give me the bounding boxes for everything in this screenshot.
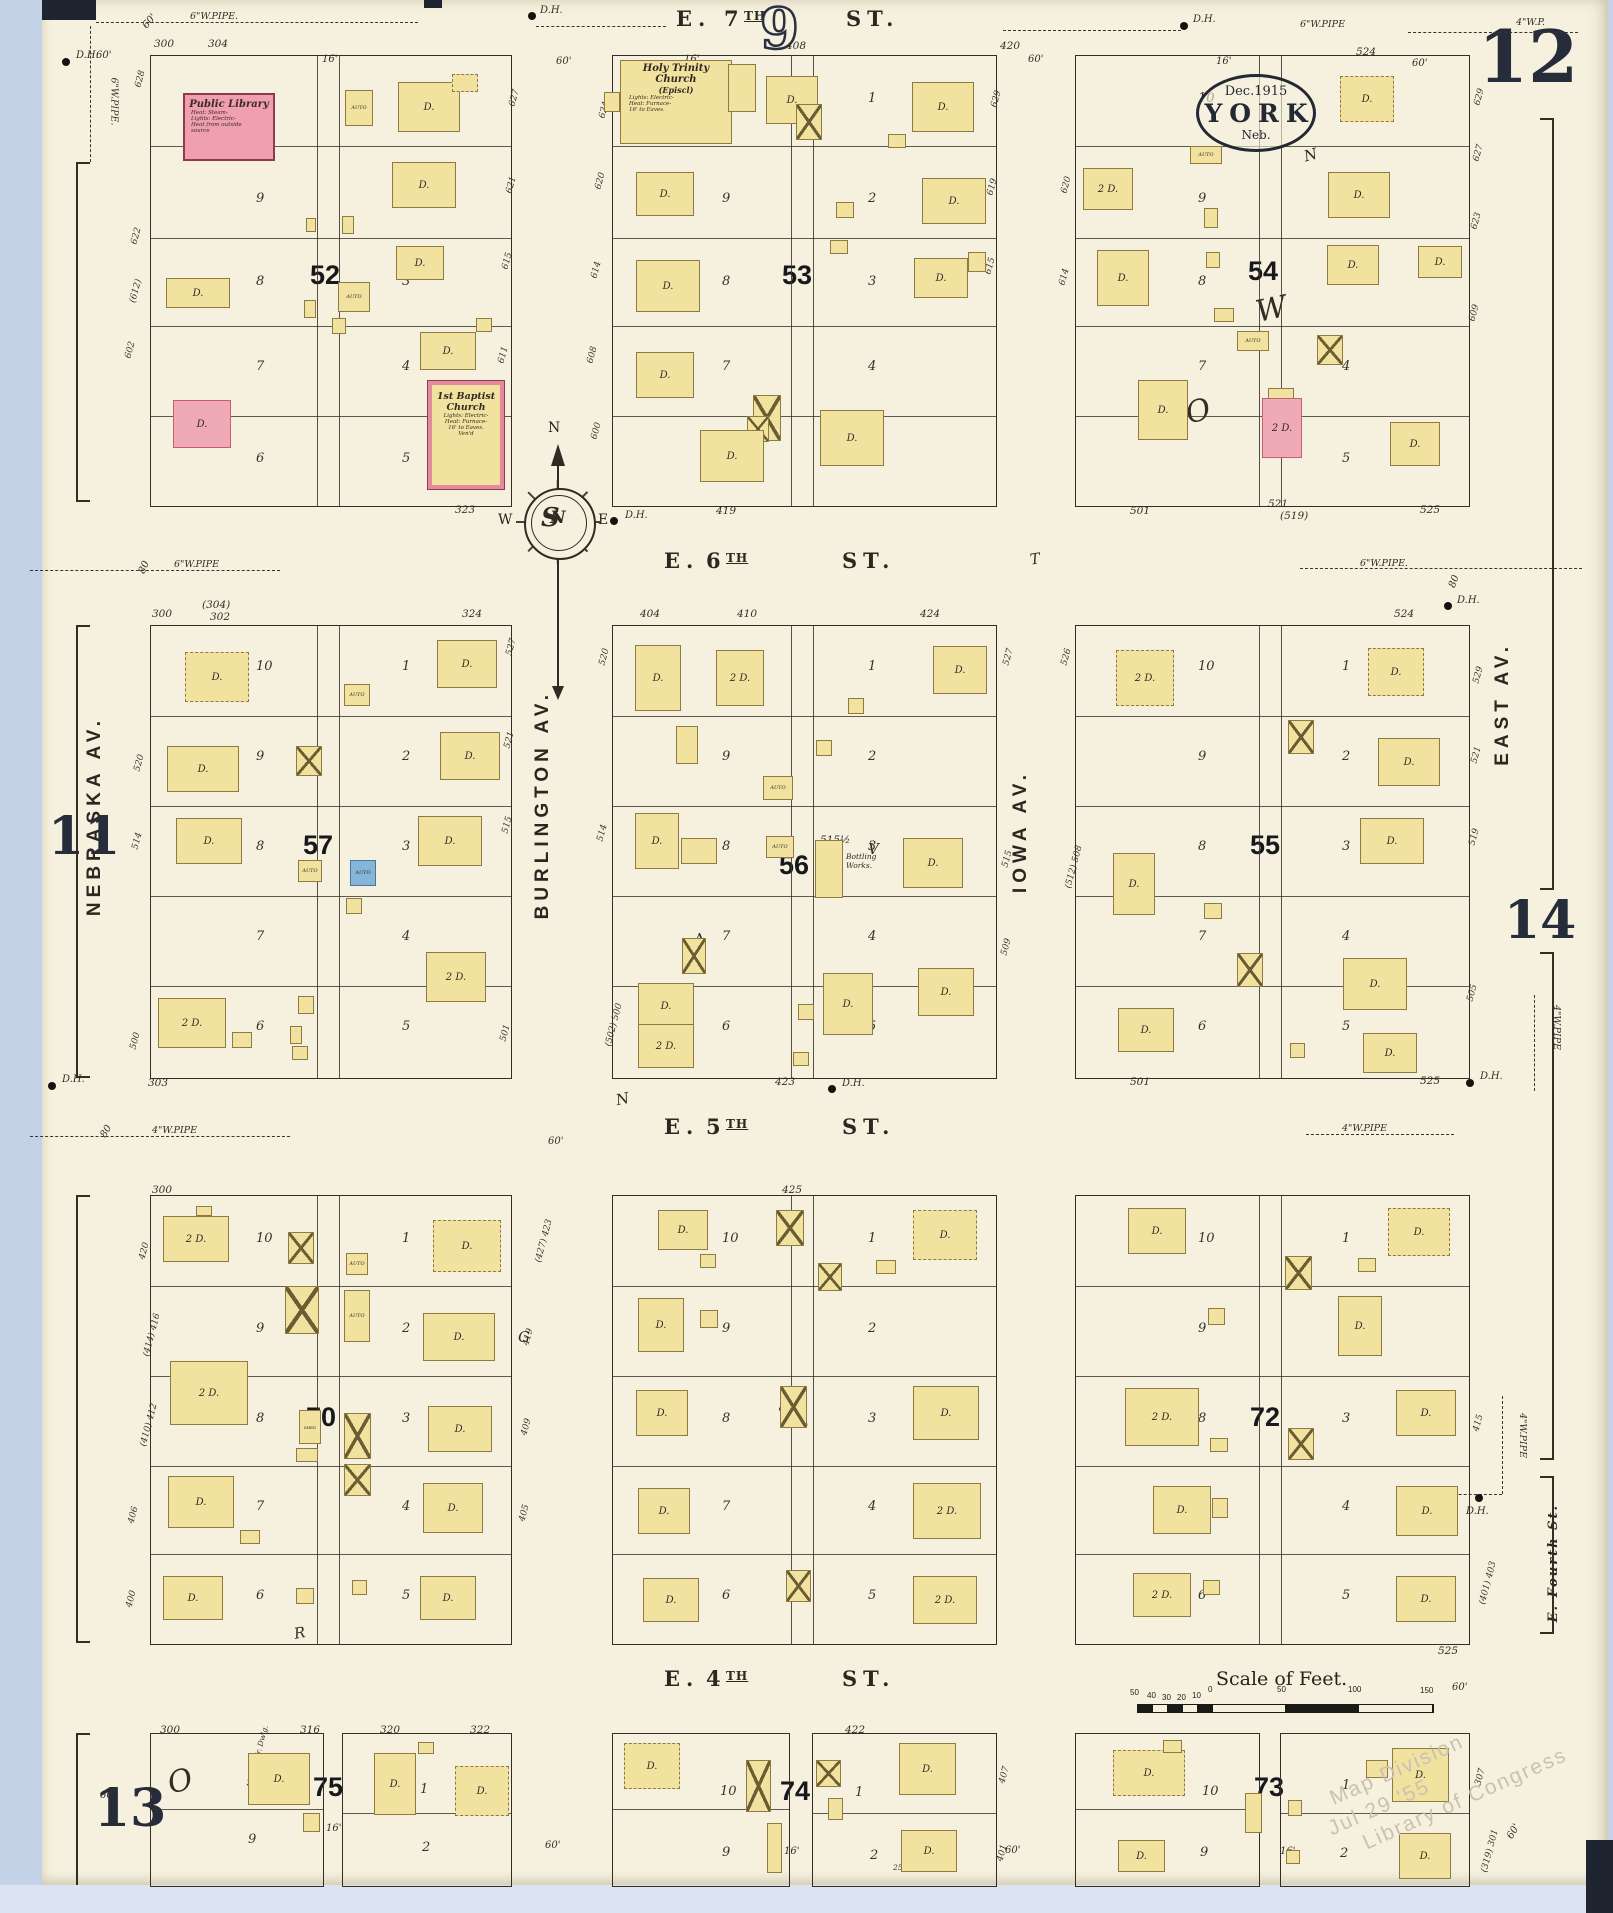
- building-dwelling: [798, 1004, 814, 1020]
- hydrant-dot: [48, 1082, 56, 1090]
- building-dwelling: D.: [1368, 648, 1424, 696]
- building-label: D.: [1144, 1768, 1155, 1779]
- lot-line: [1076, 986, 1469, 987]
- building-dwelling: [304, 300, 316, 318]
- building-label: 2 D.: [446, 972, 466, 983]
- lot-number: 10: [256, 1231, 273, 1246]
- building-label: D.: [1385, 1048, 1396, 1059]
- landmark-holy-trinity-church: Holy Trinity Church (Episcl) Lights: Ele…: [620, 60, 732, 144]
- building-label: D.: [193, 288, 204, 299]
- building-dwelling: [306, 218, 316, 232]
- building-label: D.: [949, 196, 960, 207]
- building-dwelling: [968, 252, 986, 272]
- building-label: D.: [955, 665, 966, 676]
- building-label: D.: [188, 1593, 199, 1604]
- dimension-label: 60': [556, 56, 571, 67]
- compass-needle-tip: [551, 444, 565, 466]
- lot-number: 4: [868, 929, 876, 944]
- lot-number: 9: [722, 1321, 730, 1336]
- building-dwelling: D.: [1390, 422, 1440, 466]
- house-number: 415: [1472, 1413, 1486, 1432]
- margin-line: [76, 162, 78, 502]
- landmark-bottling-works-label: Bottling Works.: [846, 852, 876, 870]
- building-label: D.: [1422, 1506, 1433, 1517]
- address-label: 424: [920, 608, 940, 620]
- landmark-name: (Episcl): [621, 85, 731, 95]
- lot-line: [151, 326, 511, 327]
- lot-number: 4: [402, 929, 410, 944]
- dimension-label: 80: [137, 559, 152, 575]
- hydrant-dot: [828, 1085, 836, 1093]
- alley-line: [317, 56, 318, 506]
- building-dwelling: [196, 1206, 212, 1216]
- building-dwelling: [604, 92, 620, 112]
- map-date: Dec.1915: [1225, 84, 1288, 99]
- building-dwelling: D.: [248, 1753, 310, 1805]
- building-label: D.: [653, 673, 664, 684]
- building-barn-x: [776, 1210, 804, 1246]
- house-number: 614: [590, 260, 604, 279]
- house-number: (427) 423: [534, 1218, 555, 1263]
- building-dwelling: [1210, 1438, 1228, 1452]
- building-label: D.: [1141, 1025, 1152, 1036]
- building-dwelling: D.: [1396, 1576, 1456, 1622]
- building-label: D.: [666, 1595, 677, 1606]
- address-label: 300: [152, 608, 172, 620]
- building-barn-x: [296, 746, 322, 776]
- lot-number: 6: [256, 1588, 264, 1603]
- building-dwelling: D.: [1113, 1750, 1185, 1796]
- building-dwelling: D.: [1396, 1486, 1458, 1536]
- lot-number: 2: [1342, 749, 1350, 764]
- building-label: D.: [843, 999, 854, 1010]
- water-pipe-line: [30, 1136, 290, 1137]
- lot-line: [151, 716, 511, 717]
- lot-number: 1: [1342, 1231, 1350, 1246]
- address-label: 524: [1394, 608, 1414, 620]
- building-dwelling: [830, 240, 848, 254]
- scale-bar-cell: [1286, 1705, 1359, 1712]
- house-number: 514: [596, 823, 610, 842]
- landmark-note: Ven'd: [432, 431, 500, 437]
- margin-line: [1540, 1632, 1553, 1634]
- building-dwelling: [1288, 1800, 1302, 1816]
- building-dwelling: D.: [1328, 172, 1390, 218]
- water-pipe-label: 4"W.P.: [1514, 17, 1547, 28]
- water-pipe-line: [1306, 1134, 1454, 1135]
- building-label: D.: [941, 1408, 952, 1419]
- building-dwelling: [700, 1254, 716, 1268]
- hydrant-dot: [528, 12, 536, 20]
- building-dwelling: AUTO: [298, 860, 322, 882]
- building-dwelling: [232, 1032, 252, 1048]
- house-number: (319) 301: [1480, 1828, 1501, 1873]
- street-label-suffix: TH: [726, 551, 748, 565]
- lot-number: 6: [256, 1019, 264, 1034]
- building-barn-x: [344, 1413, 371, 1459]
- building-dwelling: [676, 726, 698, 764]
- building-dwelling: D.: [635, 813, 679, 869]
- dimension-label: 80: [1447, 574, 1462, 590]
- building-dwelling: AUTO: [344, 1290, 370, 1342]
- building-dwelling: [1214, 308, 1234, 322]
- alley-line: [1281, 626, 1282, 1078]
- building-label: D.: [1370, 979, 1381, 990]
- building-dwelling: [352, 1580, 367, 1595]
- building-label: D.: [1354, 190, 1365, 201]
- building-dwelling: D.: [624, 1743, 680, 1789]
- building-dwelling: [816, 740, 832, 756]
- lot-number: 9: [1198, 191, 1206, 206]
- margin-line: [1552, 118, 1554, 890]
- map-city: YORK: [1204, 99, 1314, 128]
- water-pipe-label: 6"W.PIPE: [1298, 19, 1347, 30]
- hydrant-label: D.H.: [842, 1078, 865, 1089]
- lot-number: 8: [1198, 1411, 1206, 1426]
- hydrant-label: D.H.: [1193, 14, 1216, 25]
- building-label: D.: [936, 273, 947, 284]
- building-barn-x: [1285, 1256, 1312, 1290]
- building-dwelling: [303, 1813, 320, 1832]
- street-label: E.: [676, 6, 711, 31]
- building-dwelling: D.: [374, 1753, 416, 1815]
- compass-north-label: N: [548, 420, 560, 436]
- water-pipe-label: 6"W.PIPE.: [109, 75, 120, 127]
- building-label: D.: [462, 659, 473, 670]
- street-label: E.: [664, 1666, 699, 1691]
- lot-number: 7: [256, 929, 264, 944]
- lot-number: 10: [1198, 1231, 1215, 1246]
- landmark-name: 1st Baptist Church: [432, 391, 500, 413]
- lot-number: 2: [868, 749, 876, 764]
- water-pipe-line: [1300, 568, 1582, 569]
- water-pipe-label: 4"W.PIPE: [150, 1125, 199, 1136]
- building-dwelling: D.: [185, 652, 249, 702]
- lot-number: 5: [1342, 1019, 1350, 1034]
- building-dwelling: D.: [396, 246, 444, 280]
- address-label: 525: [1438, 1645, 1458, 1657]
- lot-number: 7: [722, 359, 730, 374]
- lot-number: 2: [402, 749, 410, 764]
- building-dwelling: [1245, 1793, 1262, 1833]
- lot-number: 1: [402, 659, 410, 674]
- building-label: D.: [661, 1001, 672, 1012]
- building-barn-x: [288, 1232, 314, 1264]
- building-label: 2 D.: [937, 1506, 957, 1517]
- building-dwelling: AUTO: [1237, 331, 1269, 351]
- building-dwelling: D.: [455, 1766, 509, 1816]
- building-label: D.: [1348, 260, 1359, 271]
- lot-number: 1: [868, 659, 876, 674]
- street-label: 7: [724, 6, 745, 31]
- building-dwelling: [1286, 1850, 1300, 1864]
- scale-tick-label: 150: [1420, 1686, 1433, 1695]
- dimension-label: 60': [1505, 1822, 1522, 1841]
- compass-east-label: E: [598, 512, 608, 528]
- address-label: 410: [737, 608, 757, 620]
- dimension-label: 60': [545, 1840, 560, 1851]
- building-dwelling: [1203, 1580, 1220, 1595]
- building-dwelling: [1204, 208, 1218, 228]
- building-dwelling: D.: [901, 1830, 957, 1872]
- lot-number: 1: [868, 91, 876, 106]
- building-label: AUTO: [349, 1261, 364, 1267]
- house-number: 514: [131, 831, 145, 850]
- lot-number: 9: [256, 191, 264, 206]
- lot-number: 6: [1198, 1019, 1206, 1034]
- building-label: D.: [1421, 1408, 1432, 1419]
- building-dwelling: [767, 1823, 782, 1873]
- scale-tick-label: 10: [1192, 1691, 1201, 1700]
- compass-south-arrow: [552, 686, 564, 700]
- lot-number: 9: [256, 1321, 264, 1336]
- building-label: 2 D.: [656, 1041, 676, 1052]
- street-label-suffix: TH: [726, 1669, 748, 1683]
- building-barn-x: [1237, 953, 1263, 987]
- building-dwelling: [728, 64, 756, 112]
- building-dwelling: D.: [1418, 246, 1462, 278]
- lot-number: 9: [722, 749, 730, 764]
- scale-bar-cell: [1168, 1705, 1183, 1712]
- landmark-name: Works.: [846, 861, 876, 870]
- hydrant-label: D.H.: [625, 510, 648, 521]
- building-label: AUTO: [1245, 338, 1260, 344]
- building-dwelling: D.: [398, 82, 460, 132]
- address-label: 408: [786, 40, 806, 52]
- house-number: 628: [134, 69, 148, 88]
- lot-number: 7: [1198, 929, 1206, 944]
- building-dwelling: 2 D.: [638, 1024, 694, 1068]
- building-label: D.: [1414, 1227, 1425, 1238]
- dimension-label: 16': [326, 1823, 341, 1834]
- lot-number: 8: [256, 1411, 264, 1426]
- house-number: 614: [1058, 267, 1072, 286]
- building-dwelling: [700, 1310, 718, 1328]
- building-label: AUTO: [302, 868, 317, 874]
- margin-line: [76, 1195, 90, 1197]
- house-number: 401: [996, 1843, 1010, 1862]
- building-barn-x: [786, 1570, 811, 1602]
- alley-line: [1259, 626, 1260, 1078]
- building-dwelling: AUTO: [345, 90, 373, 126]
- lot-line: [613, 1376, 996, 1377]
- building-label: AUTO: [351, 105, 366, 111]
- hydrant-dot: [1475, 1494, 1483, 1502]
- building-label: D.: [390, 1779, 401, 1790]
- building-dwelling: D.: [638, 1298, 684, 1352]
- hydrant-label: D.H.: [540, 5, 563, 16]
- lot-line: [613, 896, 996, 897]
- building-label: 2 D.: [1152, 1590, 1172, 1601]
- building-dwelling: D.: [1363, 1033, 1417, 1073]
- building-label: 2 D.: [730, 673, 750, 684]
- scale-bar-cell: [1183, 1705, 1198, 1712]
- building-label: D.: [462, 1241, 473, 1252]
- lot-number: 5: [402, 1588, 410, 1603]
- water-pipe-line: [536, 26, 666, 27]
- building-dwelling: D.: [1153, 1486, 1211, 1534]
- building-barn-x: [285, 1286, 319, 1334]
- lot-number: 6: [722, 1019, 730, 1034]
- lot-line: [613, 326, 996, 327]
- lot-line: [151, 238, 511, 239]
- water-pipe-label: 6"W.PIPE.: [188, 11, 240, 22]
- building-label: D.: [924, 1846, 935, 1857]
- alley-line: [1259, 1196, 1260, 1644]
- building-dwelling: 2 D.: [163, 1216, 229, 1262]
- margin-line: [1540, 1476, 1553, 1478]
- landmark-note: 16' to Eaves.: [629, 107, 731, 113]
- landmark-name: Holy Trinity: [621, 63, 731, 74]
- compass-monogram: SN: [541, 503, 560, 533]
- scale-tick-label: 100: [1348, 1685, 1361, 1694]
- building-label: AUTO: [1198, 152, 1213, 158]
- building-dwelling: [876, 1260, 896, 1274]
- building-label: D.: [928, 858, 939, 869]
- house-number: (401) 403: [1478, 1560, 1499, 1605]
- building-dwelling: D.: [823, 973, 873, 1035]
- building-auto-blue: AUTO: [350, 860, 376, 886]
- lot-number: 8: [256, 274, 264, 289]
- water-pipe-label: 4"W.PIPE: [1517, 1411, 1528, 1460]
- building-barn-x: [818, 1263, 842, 1291]
- building-dwelling: [1208, 1308, 1225, 1325]
- margin-line: [1540, 952, 1553, 954]
- building-dwelling: [1204, 903, 1222, 919]
- building-dwelling: D.: [176, 818, 242, 864]
- building-dwelling: AUTO: [346, 1253, 368, 1275]
- building-pink-brick: 2 D.: [1262, 398, 1302, 458]
- lot-line: [1076, 238, 1469, 239]
- building-label: D.: [647, 1761, 658, 1772]
- building-label: D.: [1404, 757, 1415, 768]
- avenue-label: IOWA AV.: [1010, 770, 1032, 893]
- building-pink-brick: D.: [173, 400, 231, 448]
- address-label: 304: [208, 38, 228, 50]
- water-pipe-line: [1003, 30, 1181, 31]
- lot-line: [151, 1286, 511, 1287]
- scale-bar-title: Scale of Feet.: [1216, 1668, 1347, 1690]
- building-dwelling: D.: [420, 1576, 476, 1620]
- building-label: D.: [1136, 1851, 1147, 1862]
- house-number: 600: [590, 421, 604, 440]
- building-label: D.: [1152, 1226, 1163, 1237]
- lot-line: [151, 1809, 323, 1810]
- avenue-label: BURLINGTON AV.: [532, 690, 554, 919]
- hydrant-label: D.H.: [1480, 1071, 1503, 1082]
- lot-line: [613, 1286, 996, 1287]
- house-number: 622: [130, 226, 144, 245]
- lot-number: 3: [868, 1411, 876, 1426]
- water-pipe-label: 4"W.PIPE: [1340, 1123, 1389, 1134]
- margin-line: [76, 1733, 90, 1735]
- lot-line: [613, 146, 996, 147]
- page-number: 11: [48, 806, 120, 867]
- building-dwelling: 2 D.: [1133, 1573, 1191, 1617]
- lot-line: [1076, 326, 1469, 327]
- landmark-public-library: Public Library Heat: Steam- Lights: Elec…: [183, 93, 275, 161]
- building-dwelling: D.: [392, 162, 456, 208]
- water-pipe-line: [96, 22, 418, 23]
- scale-tick-label: 40: [1147, 1691, 1156, 1700]
- building-dwelling: 2 D.: [1083, 168, 1133, 210]
- scale-tick-label: 0: [1208, 1685, 1212, 1694]
- margin-line: [1540, 118, 1553, 120]
- lot-line: [613, 806, 996, 807]
- building-dwelling: D.: [922, 178, 986, 224]
- building-label: AUTO: [349, 1313, 364, 1319]
- lot-number: 5: [402, 451, 410, 466]
- building-dwelling: D.: [913, 1386, 979, 1440]
- building-dwelling: D.: [428, 1406, 492, 1452]
- building-label: 2 D.: [186, 1234, 206, 1245]
- address-label: (519): [1280, 510, 1308, 522]
- building-dwelling: SHED: [299, 1410, 321, 1444]
- margin-line: [76, 1076, 90, 1078]
- building-dwelling: D.: [635, 645, 681, 711]
- house-number: 529: [1472, 665, 1486, 684]
- building-label: D.: [1362, 94, 1373, 105]
- lot-line: [1076, 1286, 1469, 1287]
- building-label: D.: [443, 346, 454, 357]
- lot-number: 3: [1342, 839, 1350, 854]
- landmark-first-baptist-church: 1st Baptist Church Lights: Electric- Hea…: [428, 381, 504, 489]
- building-dwelling: [681, 838, 717, 864]
- building-label: D.: [477, 1786, 488, 1797]
- margin-line: [1540, 1458, 1553, 1460]
- building-barn-x: [816, 1760, 841, 1787]
- lot-line: [1076, 806, 1469, 807]
- building-label: D.: [660, 189, 671, 200]
- address-label: 404: [640, 608, 660, 620]
- building-dwelling: [296, 1448, 318, 1462]
- building-label: D.: [678, 1225, 689, 1236]
- lot-number: 2: [868, 191, 876, 206]
- building-dwelling: D.: [700, 430, 764, 482]
- lot-line: [1076, 1809, 1259, 1810]
- water-pipe-line: [1502, 1396, 1503, 1494]
- sanborn-map-york-1915: Dec.1915 YORK Neb. SN N W E Public Libra…: [0, 0, 1613, 1913]
- hydrant-dot: [1466, 1079, 1474, 1087]
- hydrant-label: D.H.: [76, 50, 99, 61]
- building-label: 2 D.: [935, 1595, 955, 1606]
- margin-line: [76, 1733, 78, 1885]
- building-dwelling: D.: [643, 1578, 699, 1622]
- building-label: D.: [1391, 667, 1402, 678]
- building-dwelling: D.: [1113, 853, 1155, 915]
- street-label: ST.: [842, 1114, 895, 1139]
- lot-number: 8: [256, 839, 264, 854]
- water-pipe-line: [90, 26, 91, 162]
- building-label: D.: [659, 1506, 670, 1517]
- building-dwelling: D.: [899, 1743, 956, 1795]
- alley-line: [339, 56, 340, 506]
- building-dwelling: D.: [1340, 76, 1394, 122]
- building-dwelling: D.: [1097, 250, 1149, 306]
- building-dwelling: [240, 1530, 260, 1544]
- lot-number: 3: [868, 274, 876, 289]
- building-label: D.: [415, 258, 426, 269]
- building-dwelling: [1290, 1043, 1305, 1058]
- street-label: 5: [706, 1114, 727, 1139]
- alley-line: [339, 626, 340, 1078]
- building-label: 2 D.: [182, 1018, 202, 1029]
- building-dwelling: D.: [636, 172, 694, 216]
- building-dwelling: [828, 1798, 843, 1820]
- house-number: (612): [128, 278, 144, 304]
- building-dwelling: [815, 840, 843, 898]
- house-number: 500: [129, 1031, 143, 1050]
